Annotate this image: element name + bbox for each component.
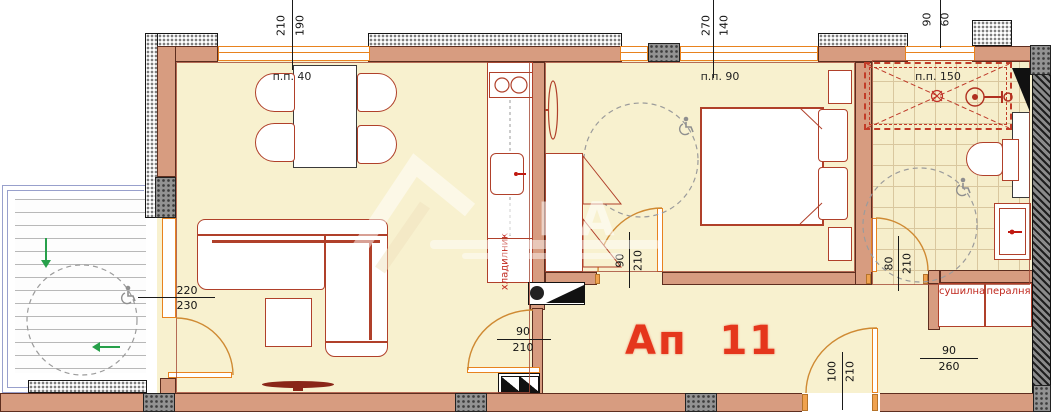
sofa-seat xyxy=(197,235,325,290)
right-wall-column-top xyxy=(1030,45,1051,75)
stove xyxy=(489,72,533,98)
balcony-bottom-insulation xyxy=(28,380,147,393)
balcony-door-leaf xyxy=(168,372,232,378)
top-wall-column xyxy=(648,43,680,62)
top-wall-insulation-c xyxy=(818,33,908,47)
kitchen-sink xyxy=(490,153,524,195)
bedroom-bottom-wall-right xyxy=(662,272,867,285)
bedroom-window-parapet-label: п.п. 90 xyxy=(690,70,750,83)
sofa-accent-line xyxy=(212,240,380,243)
washer: пералня xyxy=(985,283,1032,327)
bottom-wall-column-1 xyxy=(143,393,175,412)
bath-window-parapet-label: п.п. 150 xyxy=(905,70,971,83)
dryer-label: сушилна xyxy=(939,286,984,298)
left-wall xyxy=(157,46,176,177)
entry-door-opening xyxy=(802,393,880,412)
living-window-parapet-label: п.п. 40 xyxy=(262,70,322,83)
bedroom-window-left xyxy=(620,46,648,61)
entrance-mark-triangle xyxy=(501,376,520,392)
bed xyxy=(700,107,824,226)
dining-chair xyxy=(357,125,397,164)
entrance-mark-triangle xyxy=(520,376,539,392)
watermark-caption-bar xyxy=(462,253,622,259)
watermark-text: ЕРА xyxy=(498,192,698,246)
dim-utility-window-h: 260 xyxy=(928,360,970,372)
top-wall-b xyxy=(368,46,622,62)
dim-leader xyxy=(497,339,551,340)
dining-chair xyxy=(357,73,397,112)
dim-bath-door-h: 210 xyxy=(901,244,914,284)
dim-utility-window-w: 90 xyxy=(928,344,970,356)
top-wall-d xyxy=(972,46,1035,62)
dim-balcony-door-h: 230 xyxy=(166,299,208,311)
nightstand xyxy=(828,70,852,104)
watermark-caption-bar xyxy=(430,240,660,249)
bathroom-sink-basin xyxy=(999,208,1026,255)
dim-living-window-w: 210 xyxy=(275,6,288,46)
balcony-decking xyxy=(15,199,146,373)
utility-niche-top-wall xyxy=(940,270,1035,283)
dim-entry-door-w: 100 xyxy=(826,352,839,392)
entrance-mark-box xyxy=(498,373,540,393)
sofa-corner-seat xyxy=(325,235,388,342)
bathroom-door-threshold-left xyxy=(866,274,871,284)
washer-label: пералня xyxy=(986,286,1031,298)
bathroom-door-threshold-right xyxy=(923,274,928,284)
tv-stand xyxy=(293,387,303,391)
bedroom-door-threshold xyxy=(595,274,600,284)
balcony xyxy=(2,185,147,393)
dim-bath-door-w: 80 xyxy=(883,244,896,284)
bath-window xyxy=(905,46,975,61)
dim-living-door-w: 90 xyxy=(502,325,544,337)
top-wall-insulation-b xyxy=(368,33,622,47)
top-wall-insulation-d xyxy=(972,20,1012,46)
duct-shaft-kitchen xyxy=(528,282,585,305)
dryer: сушилна xyxy=(938,283,985,327)
toilet-cistern xyxy=(1002,139,1019,181)
dining-chair xyxy=(255,123,295,162)
pillow xyxy=(818,109,848,162)
coffee-table xyxy=(265,298,312,347)
left-wall-column xyxy=(155,177,176,218)
dim-bath-window-h: 60 xyxy=(939,0,952,40)
bathroom-door-leaf xyxy=(871,218,877,272)
dim-leader xyxy=(713,0,714,78)
bottom-wall-column-2 xyxy=(455,393,487,412)
pillow xyxy=(818,167,848,220)
left-wall-bottom-stub xyxy=(160,378,176,394)
bedroom-window-right xyxy=(680,46,818,61)
dim-living-door-h: 210 xyxy=(502,341,544,353)
dim-entry-door-h: 210 xyxy=(844,352,857,392)
dim-bath-window-w: 90 xyxy=(921,0,934,40)
floor-plan: сушилна пералня xyxy=(0,0,1051,412)
living-door-leaf xyxy=(467,367,540,373)
apartment-number-label: Ап 11 xyxy=(625,318,825,368)
dim-bedroom-window-h: 140 xyxy=(718,6,731,46)
sofa-accent-line xyxy=(369,240,372,340)
bottom-wall-column-3 xyxy=(685,393,717,412)
dim-bedroom-window-w: 270 xyxy=(700,6,713,46)
dim-living-window-h: 190 xyxy=(294,6,307,46)
dim-leader xyxy=(920,358,978,359)
sofa-backrest xyxy=(197,219,388,235)
top-wall-c xyxy=(818,46,908,62)
nightstand xyxy=(828,227,852,261)
dim-balcony-door-w: 220 xyxy=(166,284,208,296)
toilet-bowl xyxy=(966,142,1003,176)
dim-leader xyxy=(138,297,215,298)
right-wall-column-bottom xyxy=(1033,385,1051,412)
entry-door-leaf xyxy=(872,328,878,393)
entry-threshold-right xyxy=(872,394,878,411)
entry-threshold-left xyxy=(802,394,808,411)
dim-leader xyxy=(898,236,899,291)
right-common-wall xyxy=(1032,45,1051,393)
living-window xyxy=(218,46,370,61)
sofa-armrest xyxy=(325,342,388,357)
